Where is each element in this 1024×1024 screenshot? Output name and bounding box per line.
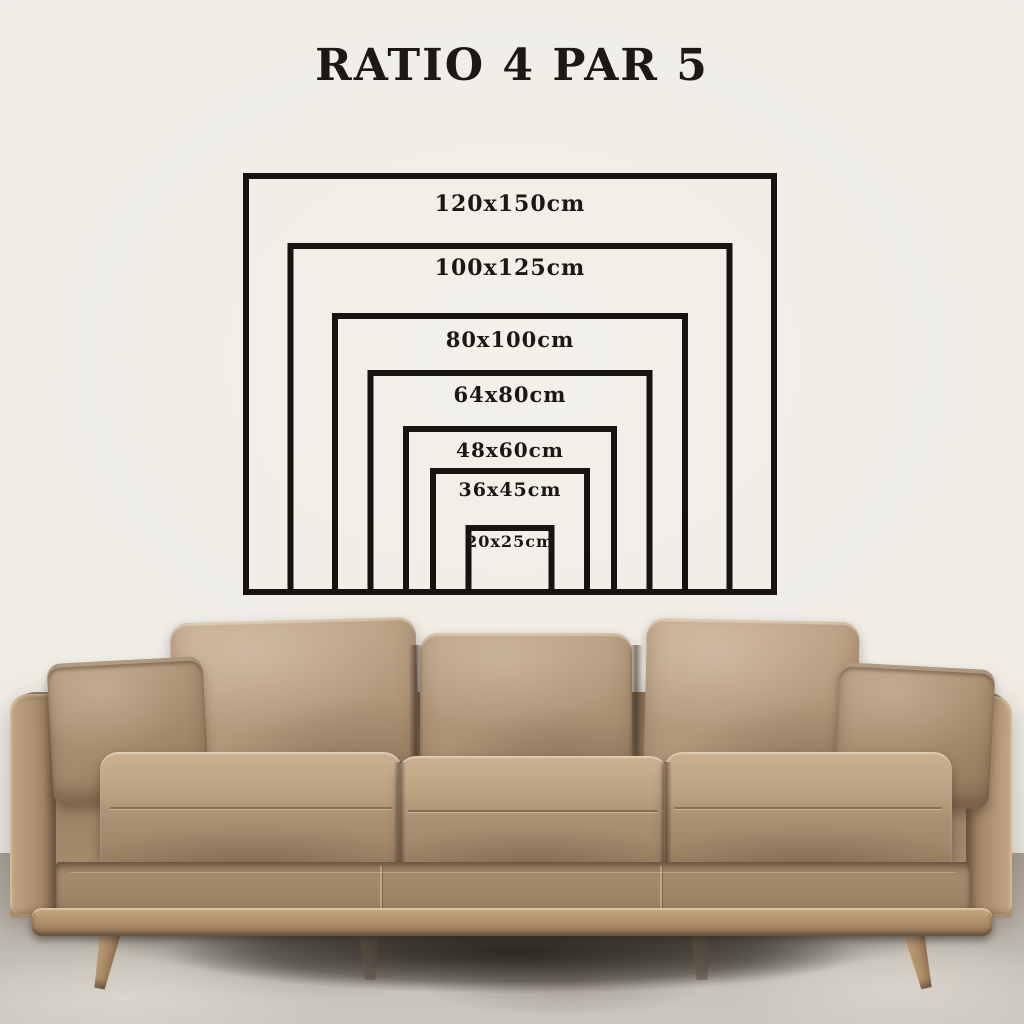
seat-piping xyxy=(110,807,392,809)
stitch-seam xyxy=(70,872,956,873)
seat-piping xyxy=(408,810,658,812)
seat-cushion-left xyxy=(100,752,402,878)
seat-crevice xyxy=(660,762,672,870)
seat-cushion-right xyxy=(664,752,952,878)
seat-crevice xyxy=(394,762,406,870)
seat-piping xyxy=(674,807,942,809)
scene: RATIO 4 PAR 5 120x150cm100x125cm80x100cm… xyxy=(0,0,1024,1024)
sofa-wood-rail xyxy=(32,908,992,936)
sofa xyxy=(0,0,1024,1024)
seat-cushion-middle xyxy=(398,756,668,878)
